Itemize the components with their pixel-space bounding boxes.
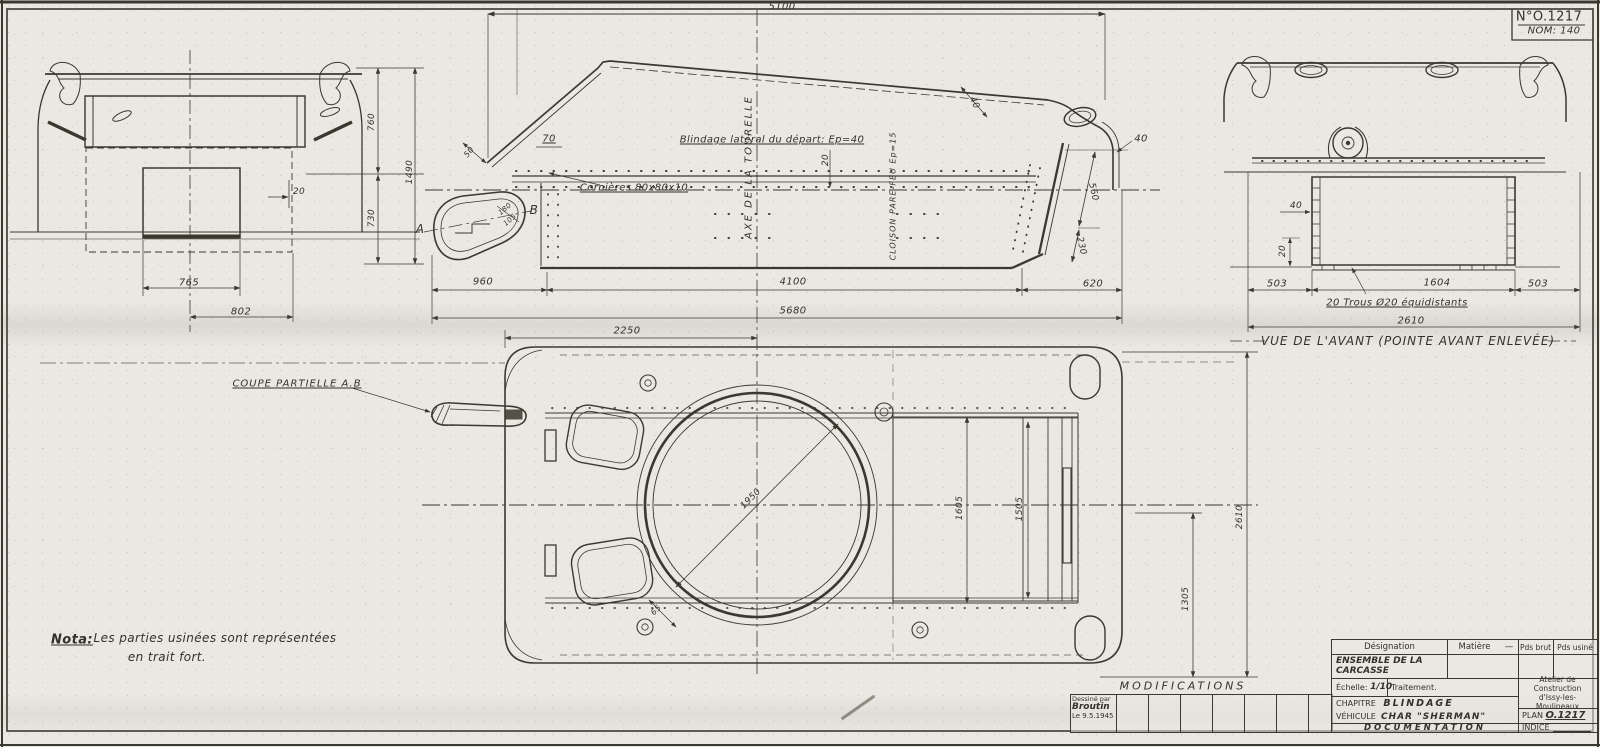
dim-20-left: 20	[293, 187, 305, 197]
dim-40-rear: 40	[1134, 134, 1148, 145]
plan-value: O.1217	[1545, 710, 1585, 721]
label-cornieres: Cornières 80x80x10	[580, 183, 688, 194]
matiere-header: Matière	[1447, 640, 1502, 654]
dim-2610-front: 2610	[1397, 316, 1424, 327]
nom-number: NOM: 140	[1528, 26, 1581, 37]
dim-960: 960	[473, 277, 493, 288]
designation-value: ENSEMBLE DE LA CARCASSE	[1332, 654, 1447, 678]
dim-20-axis: 20	[821, 154, 831, 166]
nota-label: Nota:	[51, 633, 93, 648]
holes-note: 20 Trous Ø20 équidistants	[1326, 298, 1467, 309]
dim-620: 620	[1083, 279, 1103, 290]
front-view-caption: VUE DE L'AVANT (POINTE AVANT ENLEVÉE)	[1261, 334, 1555, 348]
cloison-label: CLOISON PARE-FEU Ep=15	[889, 132, 898, 261]
atelier-line2: Construction	[1534, 684, 1582, 693]
modifications-table: Dessiné par Broutin Le 9.5.1945	[1070, 694, 1333, 733]
atelier-line1: Atelier de	[1539, 675, 1575, 684]
dim-802: 802	[231, 307, 251, 318]
nota-line1: Les parties usinées sont représentées	[94, 631, 337, 645]
title-block: Désignation Matière — Pds brut Pds usiné…	[1331, 639, 1598, 733]
page-border	[7, 9, 1593, 731]
nota-line2: en trait fort.	[128, 650, 206, 664]
matiere-value: —	[1500, 640, 1518, 654]
dim-2610-plan: 2610	[1235, 505, 1245, 530]
designation-header: Désignation	[1332, 640, 1447, 654]
traitement-label: Traitement.	[1387, 678, 1518, 696]
vehicule-value: CHAR "SHERMAN"	[1381, 712, 1486, 722]
dim-20-front: 20	[1278, 245, 1288, 257]
coupe-partielle-label: COUPE PARTIELLE A.B	[232, 379, 361, 390]
vehicule-label: VÉHICULE	[1336, 712, 1376, 721]
chapitre-label: CHAPITRE	[1336, 699, 1376, 708]
documentation-label: DOCUMENTATION	[1332, 723, 1518, 732]
indice-blank-line	[1553, 724, 1591, 732]
dim-4100: 4100	[779, 277, 806, 288]
chapitre-value: BLINDAGE	[1383, 698, 1453, 709]
dim-2250: 2250	[613, 326, 640, 337]
pds-usine-header: Pds usiné	[1553, 640, 1597, 654]
modifications-header: MODIFICATIONS	[1120, 680, 1247, 693]
dim-1605: 1605	[955, 496, 965, 521]
dim-70: 70	[542, 134, 556, 145]
dim-40-front: 40	[1290, 201, 1302, 211]
drawn-date: Le 9.5.1945	[1072, 713, 1116, 721]
dim-1305: 1305	[1181, 587, 1191, 612]
turret-axis-label: AXE DE LA TOURELLE	[744, 95, 755, 239]
echelle-label: Échelle:	[1336, 683, 1368, 692]
dim-503-right: 503	[1528, 279, 1548, 290]
section-label-b: B	[530, 203, 539, 217]
indice-label: INDICE	[1522, 723, 1550, 732]
dim-503-left: 503	[1267, 279, 1287, 290]
dim-5680: 5680	[779, 306, 806, 317]
dim-5100: 5100	[768, 2, 795, 13]
left-view-lines	[10, 50, 424, 332]
dim-765: 765	[179, 278, 199, 289]
label-blindage: Blindage latéral du départ: Ep=40	[680, 135, 864, 146]
plan-number: N°O.1217	[1516, 10, 1582, 25]
plan-view-lines	[40, 347, 1258, 677]
dim-730: 730	[367, 209, 377, 227]
pds-brut-header: Pds brut	[1518, 640, 1553, 654]
section-label-a: A	[416, 222, 425, 236]
dim-760: 760	[367, 113, 377, 131]
blueprint-sheet: N°O.1217 NOM: 140 5100 70 50 Blindage la…	[0, 0, 1600, 747]
plan-label: PLAN	[1522, 711, 1543, 720]
dim-1505: 1505	[1015, 497, 1025, 522]
dim-1604: 1604	[1423, 278, 1450, 289]
dim-1490: 1490	[405, 160, 415, 185]
side-view-lines	[424, 10, 1160, 675]
